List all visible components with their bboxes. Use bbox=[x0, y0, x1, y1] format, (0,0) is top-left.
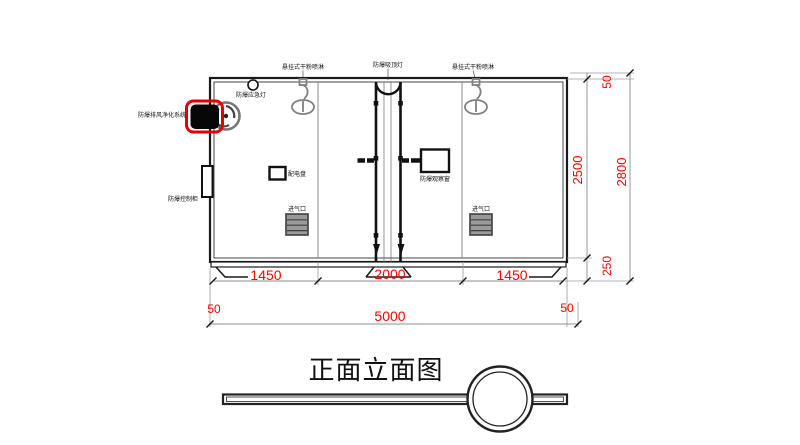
spray-right-label: 悬挂式干粉喷淋 bbox=[452, 63, 494, 71]
pipe-arrow-right bbox=[398, 244, 405, 255]
pipe-node bbox=[374, 156, 379, 161]
cabin-inner-wall bbox=[214, 82, 563, 258]
sprinkler-left bbox=[292, 79, 314, 114]
emergency-lamp-icon bbox=[248, 80, 258, 90]
emergency-lamp: 防爆应急灯 bbox=[236, 80, 266, 99]
power-panel-label: 配电盘 bbox=[288, 170, 306, 178]
control-cabinet-label: 防爆控制柜 bbox=[168, 195, 198, 203]
pipe-node bbox=[398, 101, 403, 106]
spray-left-label: 悬挂式干粉喷淋 bbox=[282, 63, 324, 71]
leg-right bbox=[529, 267, 561, 277]
pipe-arrow-left bbox=[373, 244, 380, 255]
dim-50-left: 50 bbox=[207, 302, 221, 316]
fan-body bbox=[191, 105, 220, 130]
power-panel: 配电盘 bbox=[270, 167, 307, 180]
observation-window-label: 防爆观察窗 bbox=[420, 175, 450, 183]
dim-250: 250 bbox=[600, 256, 614, 276]
drawing-title: 正面立面图 bbox=[308, 356, 443, 385]
observation-window-box bbox=[421, 150, 449, 173]
dim-2000-center: 2000 bbox=[374, 266, 405, 282]
height-dimension-chains: 50 2500 2800 250 bbox=[565, 70, 634, 285]
pipe-top-arc bbox=[376, 83, 401, 94]
ceiling-lamp-label: 防爆吸顶灯 bbox=[373, 61, 403, 69]
air-inlet-right-label: 进气口 bbox=[472, 205, 490, 213]
control-cabinet-box bbox=[202, 166, 213, 197]
fan-hub-icon bbox=[224, 114, 228, 118]
sprinkler-right bbox=[465, 79, 487, 114]
dim-1450-right: 1450 bbox=[496, 267, 527, 283]
leader-line bbox=[473, 71, 475, 79]
air-inlet-right: 进气口 bbox=[470, 205, 492, 235]
dim-2800: 2800 bbox=[614, 158, 629, 187]
cabin-outline bbox=[210, 78, 567, 277]
dim-5000: 5000 bbox=[374, 308, 405, 324]
pipe-node bbox=[374, 233, 379, 238]
pipe-node bbox=[398, 233, 403, 238]
pipe-node bbox=[374, 101, 379, 106]
sprinkler-hook-icon bbox=[303, 85, 308, 99]
cabin-outer-wall bbox=[210, 78, 567, 262]
emergency-lamp-label: 防爆应急灯 bbox=[236, 91, 266, 99]
dim-50-top: 50 bbox=[600, 75, 614, 89]
center-pipe-assembly bbox=[358, 82, 421, 262]
air-inlet-grille-icon bbox=[286, 214, 308, 235]
control-cabinet: 防爆控制柜 bbox=[168, 166, 213, 203]
leg-left bbox=[216, 267, 248, 277]
dim-2500: 2500 bbox=[570, 156, 585, 185]
elevation-drawing: 防爆排风净化系统 防爆应急灯 防爆控制柜 悬挂式干粉喷淋 防爆吸顶灯 悬挂式干粉… bbox=[0, 0, 800, 445]
air-inlet-left-label: 进气口 bbox=[288, 205, 306, 213]
section-circle-icon bbox=[468, 367, 533, 432]
overall-width-chain: 50 5000 50 bbox=[207, 301, 582, 328]
dim-50-right: 50 bbox=[560, 301, 574, 315]
dim-1450-left: 1450 bbox=[250, 267, 281, 283]
air-inlet-grille-icon bbox=[470, 214, 492, 235]
observation-window: 防爆观察窗 bbox=[420, 150, 450, 184]
power-panel-box bbox=[270, 167, 286, 180]
air-inlet-left: 进气口 bbox=[286, 205, 308, 235]
exhaust-purifier-label: 防爆排风净化系统 bbox=[138, 111, 186, 119]
sprinkler-hook-icon bbox=[476, 85, 481, 99]
exhaust-purifier-unit: 防爆排风净化系统 bbox=[138, 101, 240, 132]
